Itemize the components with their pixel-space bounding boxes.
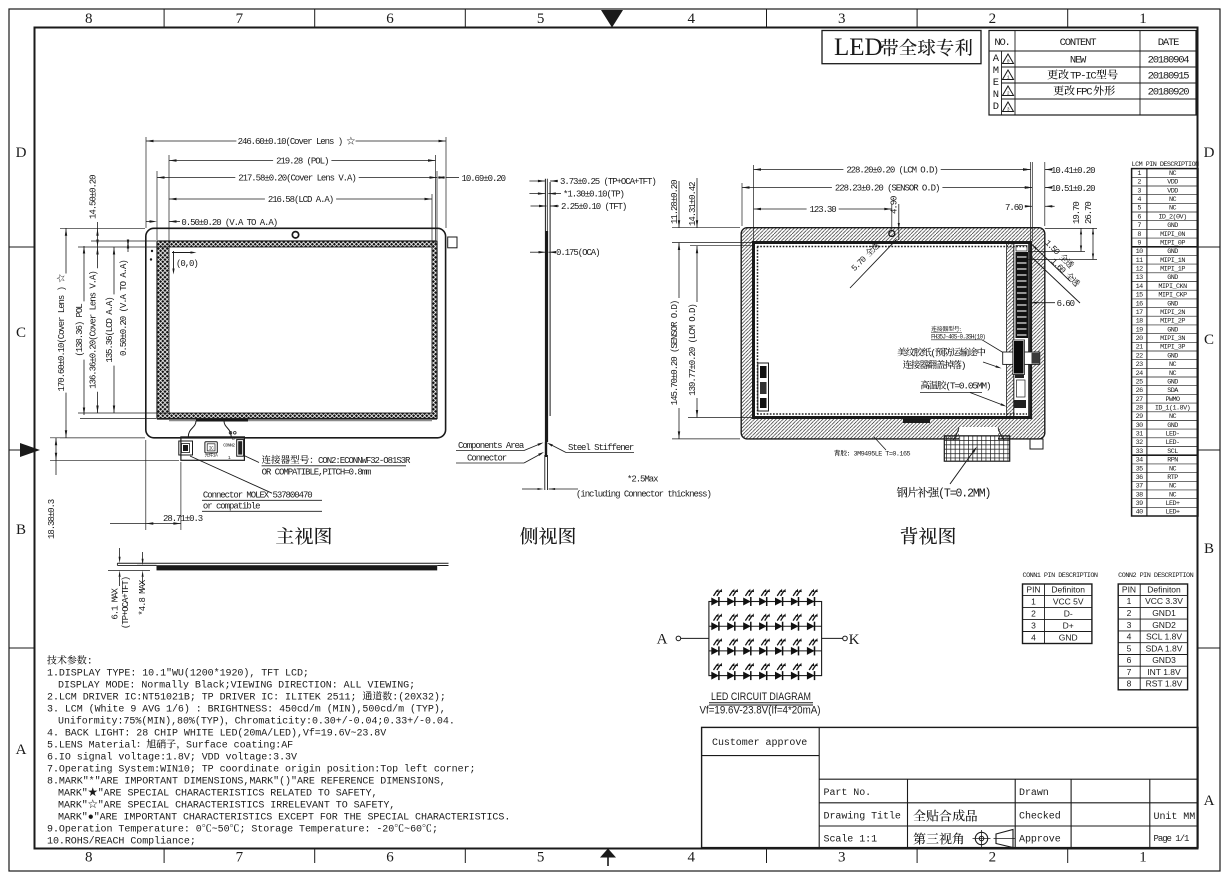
svg-text:ID_1(1.8V): ID_1(1.8V) bbox=[1155, 405, 1190, 413]
svg-text:170.60±0.10(Cover Lens ) ☆: 170.60±0.10(Cover Lens ) ☆ bbox=[56, 274, 67, 392]
svg-text:11: 11 bbox=[1136, 257, 1144, 265]
svg-text:4: 4 bbox=[1031, 633, 1036, 643]
svg-text:Drawn: Drawn bbox=[1019, 788, 1049, 799]
svg-text:3: 3 bbox=[1127, 620, 1132, 630]
svg-text:7.Operating System:WIN10; TP c: 7.Operating System:WIN10; TP coordinate … bbox=[47, 764, 475, 776]
svg-text:13: 13 bbox=[1136, 274, 1144, 282]
svg-text:40: 40 bbox=[1136, 509, 1144, 517]
svg-text:2.25±0.10 (TFT): 2.25±0.10 (TFT) bbox=[561, 202, 626, 212]
svg-text:33: 33 bbox=[1136, 448, 1144, 456]
svg-text:MIPI_CKN: MIPI_CKN bbox=[1158, 283, 1187, 291]
svg-text:246.60±0.10(Cover Lens ) ☆: 246.60±0.10(Cover Lens ) ☆ bbox=[238, 136, 356, 147]
svg-text:Definiton: Definiton bbox=[1147, 585, 1181, 595]
svg-text:LED: LED bbox=[834, 34, 883, 61]
svg-text:*2.5Max: *2.5Max bbox=[627, 475, 658, 485]
svg-text:11.28±0.20: 11.28±0.20 bbox=[670, 180, 680, 224]
svg-text:SCL 1.8V: SCL 1.8V bbox=[1146, 632, 1182, 642]
svg-text:Connector: Connector bbox=[467, 454, 507, 464]
svg-text:外形: 外形 bbox=[1093, 83, 1115, 99]
svg-text:GND: GND bbox=[1167, 300, 1178, 308]
svg-text:3. LCM (White 9 AVG 1/6) : BRI: 3. LCM (White 9 AVG 1/6) : BRIGHTNESS: 4… bbox=[47, 704, 446, 716]
svg-text:39: 39 bbox=[1136, 500, 1144, 508]
svg-text:Part No.: Part No. bbox=[824, 788, 872, 799]
svg-text:技术参数:: 技术参数: bbox=[47, 655, 93, 668]
svg-text:Drawing Title: Drawing Title bbox=[824, 811, 901, 823]
svg-text:VDD: VDD bbox=[1167, 179, 1178, 187]
svg-text:7: 7 bbox=[236, 850, 244, 866]
svg-text:GND: GND bbox=[1167, 248, 1178, 256]
svg-text:27: 27 bbox=[1136, 396, 1144, 404]
svg-text:139.77±0.20 (LCM O.D): 139.77±0.20 (LCM O.D) bbox=[688, 304, 698, 395]
svg-text:Connector MOLEX 537800470: Connector MOLEX 537800470 bbox=[203, 491, 312, 501]
svg-text:Components Area: Components Area bbox=[458, 441, 525, 451]
svg-text:8: 8 bbox=[1127, 679, 1132, 689]
svg-text:Steel Stiffener: Steel Stiffener bbox=[568, 443, 634, 453]
svg-text:侧视图: 侧视图 bbox=[519, 522, 576, 549]
svg-text:D: D bbox=[16, 145, 27, 161]
svg-text:RST 1.8V: RST 1.8V bbox=[1146, 679, 1183, 689]
svg-text:DISPLAY MODE: Normally Black;V: DISPLAY MODE: Normally Black;VIEWING DIR… bbox=[58, 680, 415, 692]
svg-text:GND: GND bbox=[1167, 378, 1178, 386]
svg-text:3: 3 bbox=[838, 850, 846, 866]
svg-text:GND: GND bbox=[1167, 274, 1178, 282]
svg-text:123.30: 123.30 bbox=[810, 205, 837, 215]
svg-text:更改: 更改 bbox=[1053, 83, 1075, 99]
svg-text:4: 4 bbox=[687, 11, 695, 27]
svg-text:第三视角: 第三视角 bbox=[913, 829, 965, 848]
svg-text:NC: NC bbox=[1169, 361, 1177, 369]
svg-text:C: C bbox=[16, 325, 26, 341]
svg-text:1: 1 bbox=[1031, 597, 1036, 607]
svg-text:228.23±0.20 (SENSOR O.D): 228.23±0.20 (SENSOR O.D) bbox=[835, 184, 939, 194]
svg-text:*4.8 MAX: *4.8 MAX bbox=[138, 579, 148, 615]
svg-text:CONN1 PIN DESCRIPTION: CONN1 PIN DESCRIPTION bbox=[1023, 572, 1098, 580]
svg-text:4: 4 bbox=[1127, 632, 1132, 642]
svg-text:5: 5 bbox=[537, 11, 545, 27]
svg-text:26.70: 26.70 bbox=[1084, 202, 1094, 224]
svg-text:10.41±0.20: 10.41±0.20 bbox=[1051, 166, 1095, 176]
svg-text:8: 8 bbox=[85, 850, 93, 866]
svg-text:3.73±0.25 (TP+OCA+TFT): 3.73±0.25 (TP+OCA+TFT) bbox=[560, 177, 656, 187]
svg-text:LED+: LED+ bbox=[1165, 509, 1180, 517]
svg-text:(including Connector thickness: (including Connector thickness) bbox=[576, 490, 711, 500]
svg-text:CONN2 PIN DESCRIPTION: CONN2 PIN DESCRIPTION bbox=[1118, 572, 1193, 580]
svg-text:2: 2 bbox=[989, 850, 997, 866]
svg-text:38: 38 bbox=[1136, 491, 1144, 499]
svg-text:背胶: 3M9495LE T=0.165: 背胶: 3M9495LE T=0.165 bbox=[834, 450, 910, 459]
svg-text:4: 4 bbox=[1137, 196, 1141, 204]
svg-text:5.LENS Material：旭硝子，Surface co: 5.LENS Material：旭硝子，Surface coating:AF bbox=[47, 739, 293, 752]
svg-text:25: 25 bbox=[1136, 378, 1144, 386]
svg-text:CON2:ECONNWF32-O81S3R: CON2:ECONNWF32-O81S3R bbox=[318, 456, 411, 466]
svg-text:26: 26 bbox=[1136, 387, 1144, 395]
svg-text:2: 2 bbox=[989, 11, 997, 27]
svg-text:12: 12 bbox=[1136, 266, 1144, 274]
svg-text:14.50±0.20: 14.50±0.20 bbox=[88, 175, 98, 219]
svg-text:8: 8 bbox=[1137, 231, 1141, 239]
svg-text:DATE: DATE bbox=[1158, 37, 1179, 49]
svg-text:MARK"●"ARE IMPORTANT CHARACTER: MARK"●"ARE IMPORTANT CHARACTERISTICS EXC… bbox=[58, 812, 510, 824]
svg-text:or compatible: or compatible bbox=[203, 502, 260, 512]
svg-text:14.31±0.42: 14.31±0.42 bbox=[688, 182, 698, 226]
svg-text:20: 20 bbox=[1136, 335, 1144, 343]
svg-text:1: 1 bbox=[1127, 596, 1132, 606]
svg-text:6: 6 bbox=[1127, 655, 1132, 665]
svg-text:CONTENT: CONTENT bbox=[1060, 37, 1097, 49]
svg-text:1: 1 bbox=[1137, 170, 1141, 178]
svg-text:2.LCM DRIVER IC:NT51021B; TP D: 2.LCM DRIVER IC:NT51021B; TP DRIVER IC: … bbox=[47, 691, 446, 704]
svg-text:5: 5 bbox=[1127, 643, 1132, 653]
svg-text:VDD: VDD bbox=[1167, 187, 1178, 195]
svg-text:1: 1 bbox=[1139, 850, 1147, 866]
svg-text:34: 34 bbox=[1136, 457, 1144, 465]
svg-text:LCM PIN DESCRIPTION: LCM PIN DESCRIPTION bbox=[1132, 161, 1200, 169]
svg-text:NC: NC bbox=[1169, 465, 1177, 473]
svg-text:GND: GND bbox=[1167, 352, 1178, 360]
svg-text:(0,0): (0,0) bbox=[176, 259, 198, 269]
svg-text:GND: GND bbox=[1167, 326, 1178, 334]
svg-text:M: M bbox=[993, 65, 999, 77]
svg-text:GND: GND bbox=[1059, 633, 1078, 643]
svg-text:连接器翻盖掉落): 连接器翻盖掉落) bbox=[902, 357, 966, 371]
svg-text:2: 2 bbox=[1137, 179, 1141, 187]
svg-text:LED-: LED- bbox=[1165, 431, 1179, 439]
svg-text:Customer approve: Customer approve bbox=[712, 738, 807, 749]
svg-text:9: 9 bbox=[1137, 240, 1141, 248]
svg-text:1.DISPLAY TYPE: 10.1"WU(1200*1: 1.DISPLAY TYPE: 10.1"WU(1200*1920), TFT … bbox=[47, 668, 309, 680]
svg-text:6.60: 6.60 bbox=[1057, 299, 1075, 309]
svg-text:E: E bbox=[993, 77, 999, 89]
svg-text:CONN2: CONN2 bbox=[223, 443, 235, 449]
svg-text:LED+: LED+ bbox=[1165, 500, 1180, 508]
svg-text:10.69±0.20: 10.69±0.20 bbox=[462, 174, 506, 184]
svg-text:TP-IC: TP-IC bbox=[1070, 71, 1096, 83]
svg-text:MIPI_2P: MIPI_2P bbox=[1160, 318, 1185, 326]
svg-text:SDA 1.8V: SDA 1.8V bbox=[1146, 643, 1183, 653]
svg-text:LED-: LED- bbox=[1165, 439, 1179, 447]
svg-text:217.58±0.20(Cover Lens V.A): 217.58±0.20(Cover Lens V.A) bbox=[238, 174, 355, 184]
svg-text:2: 2 bbox=[1031, 609, 1036, 619]
svg-text:FH35J-40S-0.3SH(10): FH35J-40S-0.3SH(10) bbox=[931, 334, 985, 341]
svg-text:20180904: 20180904 bbox=[1148, 55, 1190, 67]
svg-text:5: 5 bbox=[1137, 205, 1141, 213]
svg-text:B: B bbox=[16, 522, 26, 538]
svg-text:带全球专利: 带全球专利 bbox=[880, 35, 973, 61]
svg-text:24: 24 bbox=[1136, 370, 1144, 378]
svg-text:NC: NC bbox=[1169, 196, 1177, 204]
svg-text:NEW: NEW bbox=[1070, 55, 1087, 67]
svg-text:主视图: 主视图 bbox=[275, 522, 332, 549]
svg-text:1: 1 bbox=[1139, 11, 1147, 27]
svg-text:37: 37 bbox=[1136, 483, 1144, 491]
svg-text:MIPI_0P: MIPI_0P bbox=[1160, 240, 1185, 248]
svg-text:0.175(OCA): 0.175(OCA) bbox=[556, 248, 600, 258]
svg-text:连接器型号:: 连接器型号: bbox=[931, 324, 962, 333]
svg-text:OR COMPATIBLE,PITCH=0.8mm: OR COMPATIBLE,PITCH=0.8mm bbox=[262, 468, 371, 478]
svg-text:ID_2(0V): ID_2(0V) bbox=[1158, 213, 1186, 221]
svg-text:SCL: SCL bbox=[1167, 448, 1178, 456]
svg-text:GND3: GND3 bbox=[1152, 655, 1176, 665]
svg-text:D+: D+ bbox=[1063, 621, 1074, 631]
svg-text:IC: IC bbox=[209, 446, 214, 452]
svg-text:19.70: 19.70 bbox=[1072, 202, 1082, 224]
svg-text:D: D bbox=[1204, 145, 1215, 161]
svg-text:全贴合成品: 全贴合成品 bbox=[913, 806, 978, 825]
svg-text:0.50±0.20 (V.A TO A.A): 0.50±0.20 (V.A TO A.A) bbox=[119, 260, 129, 356]
svg-text:10.ROHS/REACH Compliance;: 10.ROHS/REACH Compliance; bbox=[47, 836, 196, 848]
svg-text:7: 7 bbox=[236, 11, 244, 27]
svg-text:Scale 1:1: Scale 1:1 bbox=[824, 834, 878, 846]
svg-text:7.60: 7.60 bbox=[1005, 203, 1023, 213]
svg-text:NC: NC bbox=[1169, 205, 1177, 213]
svg-text:VCC 5V: VCC 5V bbox=[1053, 597, 1084, 607]
svg-text:145.70±0.20 (SENSOR O.D): 145.70±0.20 (SENSOR O.D) bbox=[670, 301, 680, 405]
svg-text:Uniformity:75%(MIN),80%(TYP)，C: Uniformity:75%(MIN),80%(TYP)，Chromaticit… bbox=[58, 716, 455, 728]
svg-text:28: 28 bbox=[1136, 405, 1144, 413]
svg-text:MIPI_2N: MIPI_2N bbox=[1160, 309, 1185, 317]
svg-text:RTP: RTP bbox=[1167, 474, 1178, 482]
svg-text:K: K bbox=[849, 632, 860, 648]
svg-text:NC: NC bbox=[1169, 483, 1177, 491]
svg-text:LED CIRCUIT DIAGRAM: LED CIRCUIT DIAGRAM bbox=[711, 691, 811, 703]
svg-text:8.MARK"*"ARE IMPORTANT DIMENSI: 8.MARK"*"ARE IMPORTANT DIMENSIONS,MARK"(… bbox=[47, 776, 446, 788]
svg-text:3: 3 bbox=[838, 11, 846, 27]
svg-text:MARK"★"ARE SPECIAL CHARACTERIS: MARK"★"ARE SPECIAL CHARACTERISTICS RELAT… bbox=[58, 787, 377, 800]
svg-text:216.58(LCD A.A): 216.58(LCD A.A) bbox=[268, 195, 333, 205]
svg-text:MIPI_1P: MIPI_1P bbox=[1160, 266, 1185, 274]
svg-text:4. BACK LIGHT: 28 CHIP WHITE L: 4. BACK LIGHT: 28 CHIP WHITE LED(20mA/LE… bbox=[47, 728, 386, 740]
svg-text:4.90: 4.90 bbox=[890, 196, 900, 214]
svg-text:Definiton: Definiton bbox=[1051, 585, 1085, 595]
svg-text:Page 1/1: Page 1/1 bbox=[1154, 834, 1189, 844]
svg-text:NC: NC bbox=[1169, 491, 1177, 499]
svg-text:MIPI_3N: MIPI_3N bbox=[1160, 335, 1185, 343]
svg-text:型号: 型号 bbox=[1096, 67, 1118, 83]
svg-text:6.IO signal voltage:1.8V; VDD: 6.IO signal voltage:1.8V; VDD voltage:3.… bbox=[47, 752, 297, 764]
svg-text:6.1 MAX: 6.1 MAX bbox=[110, 587, 120, 619]
svg-text:8: 8 bbox=[85, 11, 93, 27]
svg-text:PIN: PIN bbox=[1122, 585, 1136, 595]
svg-text:9.Operation Temperature: 0℃~50: 9.Operation Temperature: 0℃~50℃; Storage… bbox=[47, 824, 438, 836]
svg-text:135.36(LCD A.A): 135.36(LCD A.A) bbox=[105, 297, 115, 362]
svg-text:A: A bbox=[1204, 793, 1215, 809]
svg-text:RPN: RPN bbox=[1167, 457, 1178, 465]
svg-text:29: 29 bbox=[1136, 413, 1144, 421]
svg-text:PIN: PIN bbox=[1026, 585, 1040, 595]
svg-text:Unit MM: Unit MM bbox=[1154, 811, 1196, 823]
svg-text:28.71±0.3: 28.71±0.3 bbox=[163, 514, 203, 524]
svg-text:B: B bbox=[1204, 541, 1214, 557]
svg-text:20180920: 20180920 bbox=[1148, 87, 1190, 99]
svg-text:5: 5 bbox=[537, 850, 545, 866]
svg-text:NC: NC bbox=[1169, 413, 1177, 421]
svg-text:D: D bbox=[993, 101, 999, 113]
svg-text:(138.36) POL: (138.36) POL bbox=[75, 304, 85, 357]
svg-text:GND2: GND2 bbox=[1152, 620, 1176, 630]
svg-text:19: 19 bbox=[1136, 326, 1144, 334]
svg-text:32: 32 bbox=[1136, 439, 1144, 447]
svg-text:VCC 3.3V: VCC 3.3V bbox=[1145, 596, 1183, 606]
svg-text:10: 10 bbox=[1136, 248, 1144, 256]
svg-text:D-: D- bbox=[1064, 609, 1073, 619]
svg-text:7: 7 bbox=[1137, 222, 1141, 230]
svg-text:6: 6 bbox=[1137, 213, 1141, 221]
svg-text:背视图: 背视图 bbox=[899, 522, 956, 549]
svg-text:6: 6 bbox=[386, 850, 394, 866]
svg-text:18.38±0.3: 18.38±0.3 bbox=[47, 499, 57, 539]
svg-text:NC: NC bbox=[1169, 370, 1177, 378]
svg-text:7: 7 bbox=[1127, 667, 1132, 677]
svg-text:C: C bbox=[1204, 332, 1214, 348]
svg-text:Vf=19.6V-23.8V(If=4*20mA): Vf=19.6V-23.8V(If=4*20mA) bbox=[700, 705, 821, 717]
svg-text:INT 1.8V: INT 1.8V bbox=[1147, 667, 1181, 677]
svg-text:136.36±0.20(Cover Lens V.A): 136.36±0.20(Cover Lens V.A) bbox=[88, 271, 98, 388]
svg-text:3: 3 bbox=[1137, 187, 1141, 195]
svg-text:SDA: SDA bbox=[1167, 387, 1179, 395]
svg-text:Checked: Checked bbox=[1019, 811, 1061, 823]
svg-text:18: 18 bbox=[1136, 318, 1144, 326]
svg-text:A: A bbox=[657, 632, 668, 648]
svg-text:MIPI_0N: MIPI_0N bbox=[1160, 231, 1185, 239]
svg-text:20180915: 20180915 bbox=[1148, 71, 1190, 83]
svg-text:NC: NC bbox=[1169, 170, 1177, 178]
svg-text:228.20±0.20 (LCM O.D): 228.20±0.20 (LCM O.D) bbox=[846, 166, 937, 176]
svg-text:4: 4 bbox=[687, 850, 695, 866]
svg-text:31: 31 bbox=[1136, 431, 1144, 439]
svg-text:MIPI_1N: MIPI_1N bbox=[1160, 257, 1185, 265]
svg-text:连接器型号：: 连接器型号： bbox=[261, 452, 319, 466]
svg-text:16: 16 bbox=[1136, 300, 1144, 308]
svg-text:17: 17 bbox=[1136, 309, 1144, 317]
svg-text:21: 21 bbox=[1136, 344, 1144, 352]
svg-text:MARK"☆"ARE SPECIAL CHARACTERIS: MARK"☆"ARE SPECIAL CHARACTERISTICS IRREL… bbox=[58, 799, 395, 812]
svg-text:22: 22 bbox=[1136, 352, 1144, 360]
svg-text:35: 35 bbox=[1136, 465, 1144, 473]
svg-text:219.28 (POL): 219.28 (POL) bbox=[276, 157, 328, 167]
svg-text:6: 6 bbox=[386, 11, 394, 27]
svg-text:N: N bbox=[993, 89, 999, 101]
svg-text:NO.: NO. bbox=[994, 37, 1009, 49]
svg-text:GND: GND bbox=[1167, 422, 1178, 430]
svg-text:3: 3 bbox=[1031, 621, 1036, 631]
svg-text:36: 36 bbox=[1136, 474, 1144, 482]
svg-text:A: A bbox=[16, 742, 27, 758]
svg-text:(TP+OCA+TFT): (TP+OCA+TFT) bbox=[121, 577, 131, 629]
svg-text:*1.30±0.10(TP): *1.30±0.10(TP) bbox=[563, 190, 624, 200]
svg-text:GND1: GND1 bbox=[1152, 608, 1176, 618]
svg-text:更改: 更改 bbox=[1047, 67, 1069, 83]
svg-text:14: 14 bbox=[1136, 283, 1144, 291]
svg-text:30: 30 bbox=[1136, 422, 1144, 430]
svg-text:元件1A: 元件1A bbox=[205, 452, 219, 459]
svg-text:23: 23 bbox=[1136, 361, 1144, 369]
svg-text:0.50±0.20 (V.A TO A.A): 0.50±0.20 (V.A TO A.A) bbox=[181, 218, 277, 228]
svg-text:PWMO: PWMO bbox=[1165, 396, 1180, 404]
svg-text:2: 2 bbox=[1127, 608, 1132, 618]
svg-text:10.51±0.20: 10.51±0.20 bbox=[1051, 184, 1095, 194]
svg-text:高温胶(T=0.05MM): 高温胶(T=0.05MM) bbox=[921, 378, 991, 392]
svg-text:钢片补强(T=0.2MM): 钢片补强(T=0.2MM) bbox=[897, 485, 991, 501]
svg-text:FPC: FPC bbox=[1076, 87, 1092, 99]
svg-text:MIPI_3P: MIPI_3P bbox=[1160, 344, 1185, 352]
svg-text:GND: GND bbox=[1167, 222, 1178, 230]
svg-text:Approve: Approve bbox=[1019, 835, 1061, 846]
svg-text:MIPI_CKP: MIPI_CKP bbox=[1158, 292, 1187, 300]
svg-text:15: 15 bbox=[1136, 292, 1144, 300]
